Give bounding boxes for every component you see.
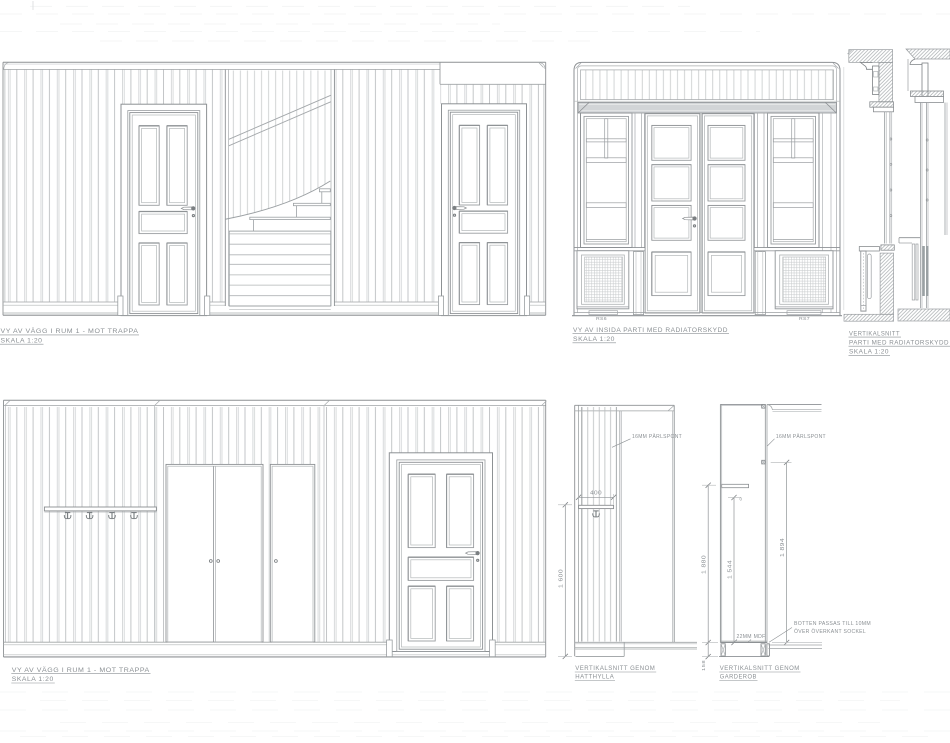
svg-text:VY AV VÄGG I RUM 1 - MOT TRA: VY AV VÄGG I RUM 1 - MOT TRAPPA	[1, 327, 139, 335]
svg-text:VY AV VÄGG I RUM 1 - MOT TRA: VY AV VÄGG I RUM 1 - MOT TRAPPA	[12, 666, 150, 674]
svg-text:0: 0	[740, 496, 743, 501]
svg-text:SKALA 1:20: SKALA 1:20	[12, 676, 54, 683]
svg-text:1 600: 1 600	[559, 569, 565, 588]
svg-text:GARDEROB: GARDEROB	[720, 674, 757, 681]
svg-text:SKALA 1:20: SKALA 1:20	[849, 349, 889, 356]
svg-text:RS7: RS7	[799, 316, 810, 321]
svg-text:BOTTEN PASSAS TILL 10MM: BOTTEN PASSAS TILL 10MM	[794, 621, 871, 627]
svg-text:1 544: 1 544	[728, 560, 734, 579]
svg-text:VERTIKALSNITT GENOM: VERTIKALSNITT GENOM	[720, 665, 800, 672]
svg-text:VY AV INSIDA PARTI MED RADIATO: VY AV INSIDA PARTI MED RADIATORSKYDD	[573, 327, 728, 334]
svg-text:1 880: 1 880	[702, 555, 708, 574]
svg-text:SKALA 1:20: SKALA 1:20	[1, 337, 43, 344]
svg-text:SKALA 1:20: SKALA 1:20	[573, 336, 615, 343]
svg-text:400: 400	[590, 491, 602, 497]
svg-text:22MM MDF: 22MM MDF	[737, 634, 766, 640]
svg-text:VERTIKALSNITT: VERTIKALSNITT	[849, 330, 900, 337]
svg-text:16MM PÄRLSPONT: 16MM PÄRLSPONT	[632, 433, 682, 440]
svg-text:ÖVER ÖVERKANT SOCKEL: ÖVER ÖVERKANT SOCKEL	[794, 628, 866, 635]
svg-text:VERTIKALSNITT GENOM: VERTIKALSNITT GENOM	[575, 665, 655, 672]
svg-text:1 894: 1 894	[780, 538, 786, 557]
svg-text:RS6: RS6	[596, 316, 607, 321]
svg-text:PARTI MED RADIATORSKYDD: PARTI MED RADIATORSKYDD	[849, 339, 949, 346]
svg-text:158: 158	[701, 660, 706, 671]
svg-text:HATTHYLLA: HATTHYLLA	[575, 674, 614, 681]
svg-text:16MM PÄRLSPONT: 16MM PÄRLSPONT	[776, 433, 826, 440]
